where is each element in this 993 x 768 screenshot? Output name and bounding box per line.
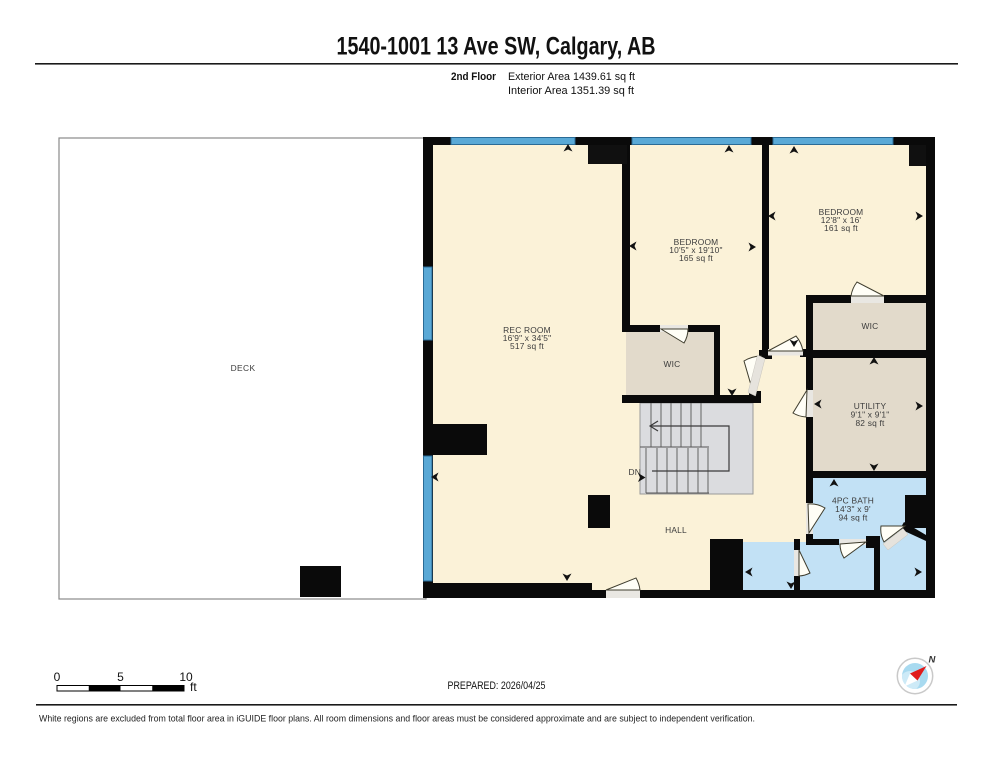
svg-text:517 sq ft: 517 sq ft <box>510 341 544 351</box>
svg-text:HALL: HALL <box>665 525 687 535</box>
svg-text:161 sq ft: 161 sq ft <box>824 223 858 233</box>
svg-text:Interior Area 1351.39 sq ft: Interior Area 1351.39 sq ft <box>508 85 634 97</box>
svg-text:WIC: WIC <box>664 359 681 369</box>
svg-text:94 sq ft: 94 sq ft <box>838 513 868 523</box>
svg-text:White regions are excluded fro: White regions are excluded from total fl… <box>39 714 755 725</box>
svg-text:5: 5 <box>117 670 124 684</box>
svg-text:DECK: DECK <box>231 363 256 373</box>
svg-text:ft: ft <box>190 680 197 694</box>
svg-text:2nd Floor: 2nd Floor <box>451 71 497 83</box>
svg-text:0: 0 <box>54 670 61 684</box>
svg-text:PREPARED: 2026/04/25: PREPARED: 2026/04/25 <box>448 680 546 692</box>
svg-text:1540-1001 13 Ave SW, Calgary,: 1540-1001 13 Ave SW, Calgary, AB <box>337 33 656 61</box>
svg-text:N: N <box>929 655 937 666</box>
svg-text:165 sq ft: 165 sq ft <box>679 253 713 263</box>
svg-text:Exterior Area 1439.61 sq ft: Exterior Area 1439.61 sq ft <box>508 71 635 83</box>
svg-text:82 sq ft: 82 sq ft <box>855 418 885 428</box>
svg-text:WIC: WIC <box>862 321 879 331</box>
